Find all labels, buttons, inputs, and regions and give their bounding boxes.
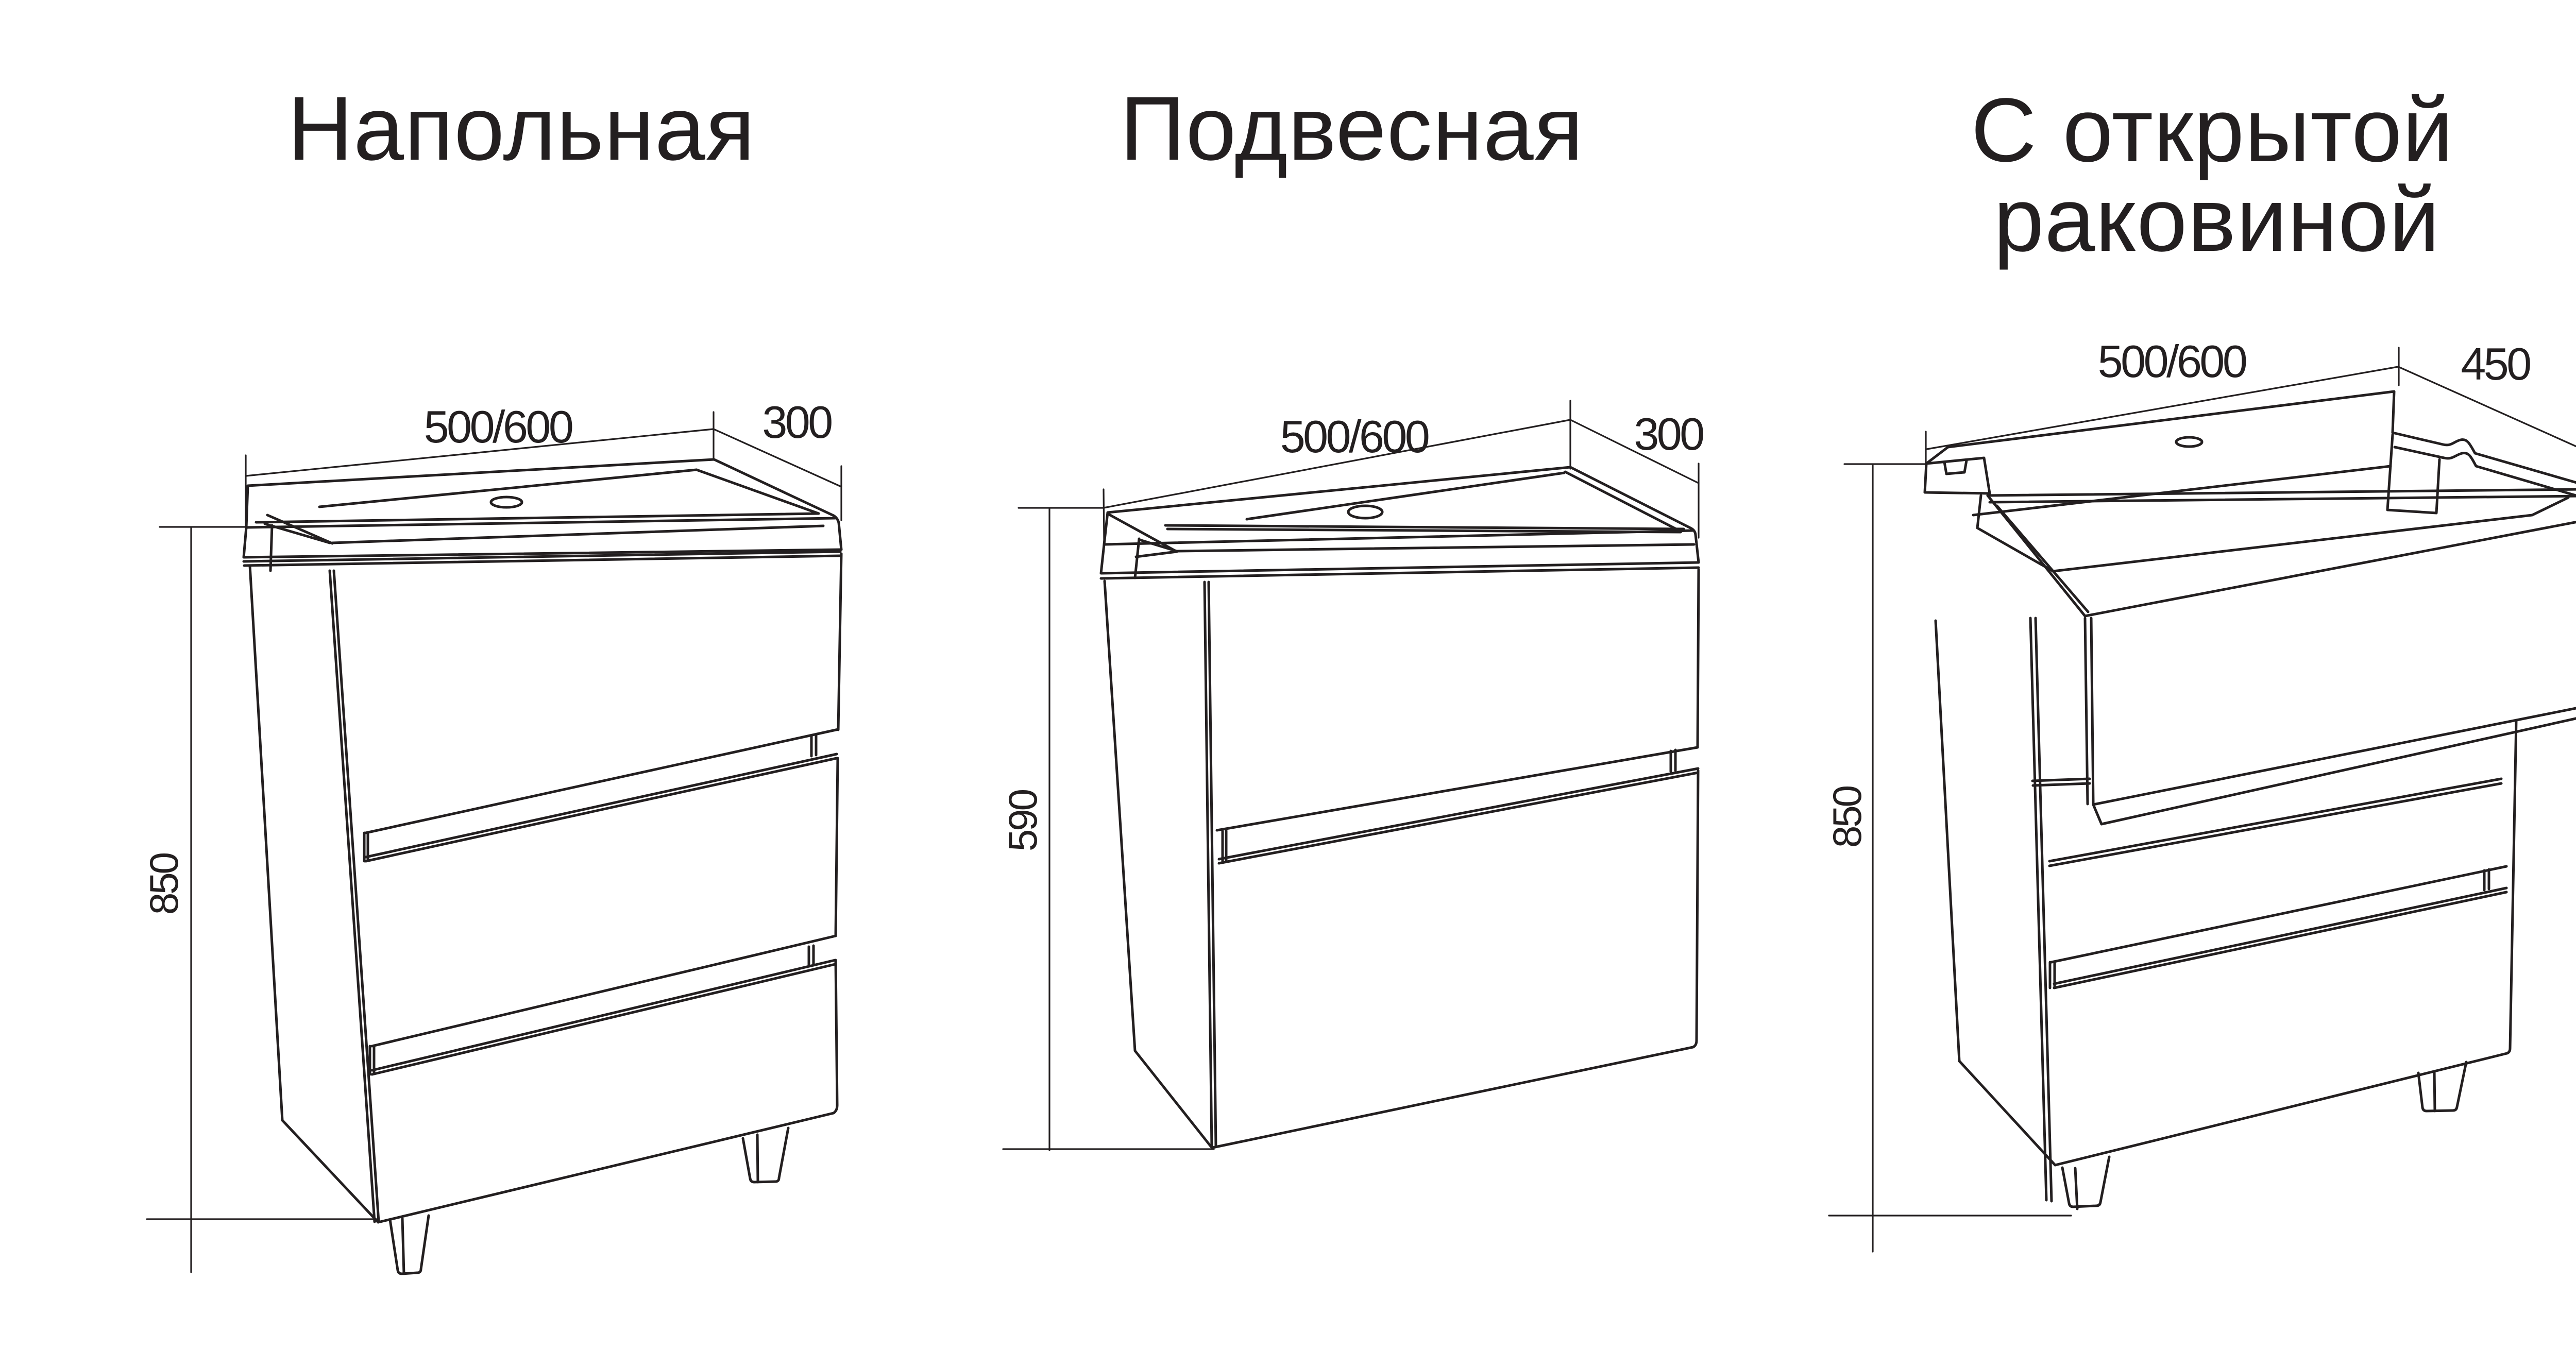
svg-text:300: 300 xyxy=(1634,408,1703,459)
svg-text:300: 300 xyxy=(762,397,832,448)
svg-text:Подвесная: Подвесная xyxy=(1120,78,1584,179)
svg-text:раковиной: раковиной xyxy=(1994,169,2441,270)
svg-text:450: 450 xyxy=(2461,338,2530,389)
svg-text:С открытой: С открытой xyxy=(1971,80,2454,181)
svg-text:500/600: 500/600 xyxy=(424,401,572,452)
svg-text:500/600: 500/600 xyxy=(2098,336,2246,387)
svg-text:Напольная: Напольная xyxy=(287,78,755,179)
svg-text:850: 850 xyxy=(141,853,187,915)
svg-text:850: 850 xyxy=(1824,786,1870,848)
svg-text:590: 590 xyxy=(1000,790,1045,851)
svg-text:500/600: 500/600 xyxy=(1280,411,1429,462)
